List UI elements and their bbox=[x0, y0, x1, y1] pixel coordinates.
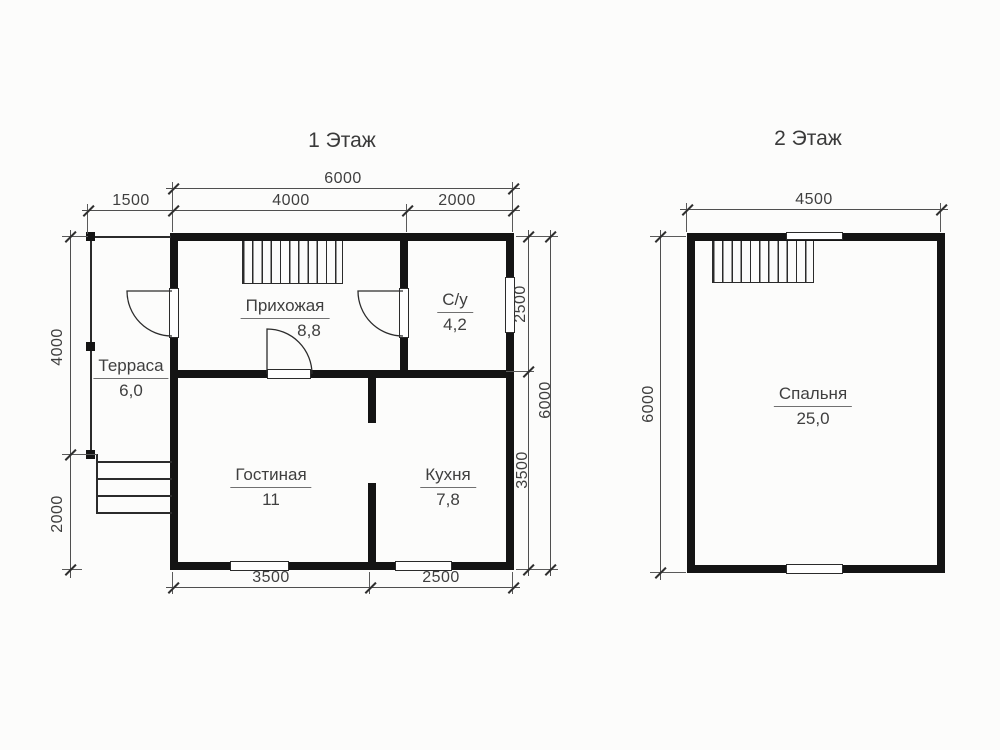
floor2-title: 2 Этаж bbox=[774, 127, 842, 151]
step-line-4 bbox=[97, 512, 172, 514]
step-line-2 bbox=[97, 478, 172, 480]
steps-edge bbox=[96, 454, 98, 514]
floor2-bedroom-window bbox=[786, 564, 843, 574]
floor1-wall-living-kitchen-upper bbox=[368, 378, 376, 423]
step-line-1 bbox=[97, 461, 172, 463]
room-label-bathroom: С/у 4,2 bbox=[437, 290, 473, 334]
dim-f1-right-inner-top: 2500 bbox=[512, 285, 530, 323]
dim-f1-bottom-left: 3500 bbox=[252, 569, 290, 587]
ext-line bbox=[172, 572, 173, 594]
room-area-kitchen: 7,8 bbox=[420, 488, 476, 510]
terrace-door-arc bbox=[125, 289, 175, 339]
dim-line-f1-top-total bbox=[166, 188, 520, 189]
floor1-top-wall bbox=[170, 233, 514, 241]
ext-line bbox=[650, 572, 686, 573]
dim-f2-left-total: 6000 bbox=[640, 385, 658, 423]
room-label-bedroom: Спальня 25,0 bbox=[774, 384, 852, 428]
floor2-right-wall bbox=[937, 241, 945, 565]
room-name-terrace: Терраса bbox=[93, 356, 168, 379]
room-label-terrace: Терраса 6,0 bbox=[93, 356, 168, 400]
ext-line bbox=[62, 454, 97, 455]
room-label-kitchen: Кухня 7,8 bbox=[420, 465, 476, 509]
step-line-3 bbox=[97, 495, 172, 497]
dim-f1-left-bottom: 2000 bbox=[49, 495, 67, 533]
dim-line-f1-right-inner bbox=[528, 230, 529, 576]
dim-f2-top-total: 4500 bbox=[795, 191, 833, 209]
room-area-bedroom: 25,0 bbox=[774, 407, 852, 429]
dim-f1-right-outer: 6000 bbox=[537, 381, 555, 419]
floor1-title: 1 Этаж bbox=[308, 129, 376, 153]
ext-line bbox=[369, 572, 370, 594]
ext-line bbox=[512, 572, 513, 594]
dim-line-f1-left bbox=[70, 230, 71, 578]
dim-line-f2-left bbox=[660, 230, 661, 580]
room-area-living: 11 bbox=[230, 488, 311, 510]
terrace-post-middle bbox=[86, 342, 95, 351]
dim-f1-right-inner-bottom: 3500 bbox=[514, 451, 532, 489]
floor1-stairs bbox=[242, 241, 343, 284]
dim-f1-top-right: 2000 bbox=[438, 192, 476, 210]
floor2-stair-opening bbox=[786, 232, 843, 240]
floor1-bottom-wall bbox=[170, 562, 514, 570]
room-label-hallway: Прихожая 8,8 bbox=[241, 296, 330, 340]
ext-line bbox=[62, 236, 88, 237]
floor1-mid-horizontal-wall bbox=[178, 370, 506, 378]
room-name-kitchen: Кухня bbox=[420, 465, 476, 488]
floor-plan-drawing: 1 Этаж 2 Этаж Прихожая 8,8 С/у 4,2 bbox=[0, 0, 1000, 750]
dim-line-f1-bottom bbox=[166, 587, 520, 588]
room-name-living: Гостиная bbox=[230, 465, 311, 488]
dim-line-f1-top-split bbox=[82, 210, 520, 211]
ext-line bbox=[406, 204, 407, 232]
floor2-stairs bbox=[712, 241, 814, 283]
dim-f1-top-mid: 4000 bbox=[272, 192, 310, 210]
ext-line bbox=[650, 236, 686, 237]
dim-f1-top-total: 6000 bbox=[324, 170, 362, 188]
room-area-terrace: 6,0 bbox=[93, 379, 168, 401]
room-area-hallway: 8,8 bbox=[265, 319, 354, 341]
room-name-bathroom: С/у bbox=[437, 290, 473, 313]
floor1-wall-living-kitchen-lower bbox=[368, 483, 376, 562]
dim-line-f2-top bbox=[680, 209, 948, 210]
room-area-bathroom: 4,2 bbox=[437, 313, 473, 335]
bathroom-door-arc bbox=[356, 289, 406, 339]
room-name-hallway: Прихожая bbox=[241, 296, 330, 319]
room-label-living: Гостиная 11 bbox=[230, 465, 311, 509]
room-name-bedroom: Спальня bbox=[774, 384, 852, 407]
terrace-top-edge bbox=[90, 236, 171, 238]
dim-f1-bottom-right: 2500 bbox=[422, 569, 460, 587]
dim-f1-left-top: 4000 bbox=[49, 328, 67, 366]
dim-f1-top-left: 1500 bbox=[112, 192, 150, 210]
floor2-left-wall bbox=[687, 241, 695, 565]
